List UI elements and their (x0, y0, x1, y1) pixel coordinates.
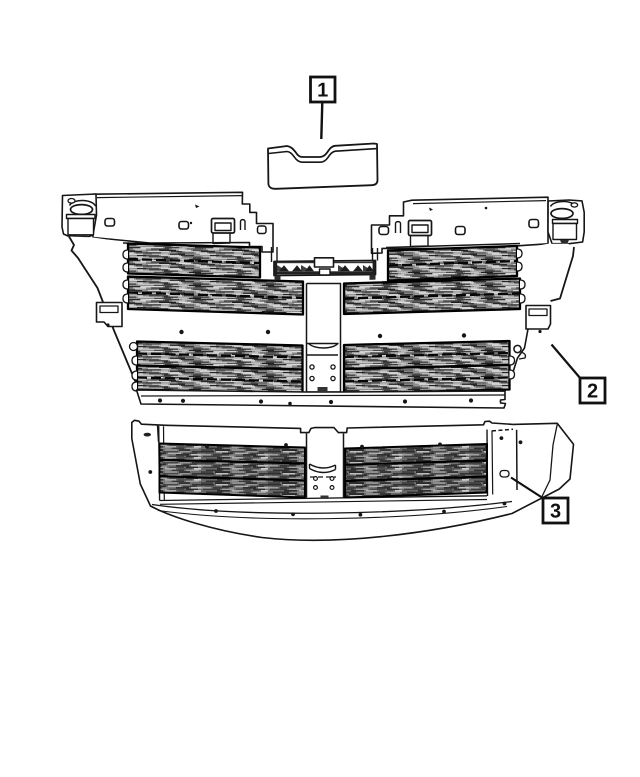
svg-text:2: 2 (587, 381, 598, 403)
svg-text:1: 1 (317, 80, 328, 102)
svg-text:3: 3 (550, 501, 561, 523)
